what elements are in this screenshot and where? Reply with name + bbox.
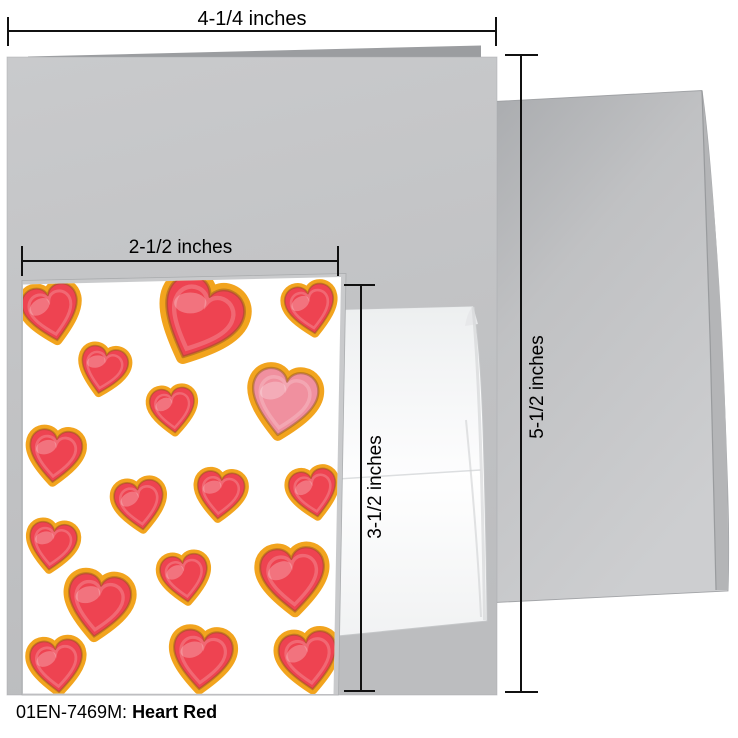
card-height-line bbox=[520, 54, 522, 693]
card-height-tick-top bbox=[505, 54, 538, 56]
product-caption: 01EN-7469M:Heart Red bbox=[16, 701, 217, 723]
insert-width-line bbox=[22, 260, 339, 262]
insert-height-line bbox=[360, 284, 362, 692]
insert-height-tick-top bbox=[344, 284, 375, 286]
card-width-tick-left bbox=[7, 17, 9, 46]
insert-width-tick-right bbox=[337, 246, 339, 276]
small-card bbox=[19, 268, 346, 695]
insert-height-label: 3-1/2 inches bbox=[366, 427, 386, 547]
card-height-tick-bottom bbox=[505, 691, 538, 693]
card-width-line bbox=[7, 30, 497, 32]
small-envelope-flap bbox=[338, 307, 481, 480]
large-card-back-panel-edge bbox=[28, 46, 481, 59]
insert-height-tick-bottom bbox=[344, 690, 375, 692]
insert-width-tick-left bbox=[21, 246, 23, 276]
insert-width-label: 2-1/2 inches bbox=[22, 238, 339, 258]
product-sku: 01EN-7469M: bbox=[16, 702, 127, 722]
card-height-label: 5-1/2 inches bbox=[528, 327, 548, 447]
product-name: Heart Red bbox=[132, 702, 217, 722]
card-width-tick-right bbox=[495, 17, 497, 46]
product-mockup-scene: 4-1/4 inches 2-1/2 inches 3-1/2 inches 5… bbox=[0, 0, 738, 738]
product-image bbox=[0, 0, 738, 738]
card-width-label: 4-1/4 inches bbox=[7, 9, 497, 29]
